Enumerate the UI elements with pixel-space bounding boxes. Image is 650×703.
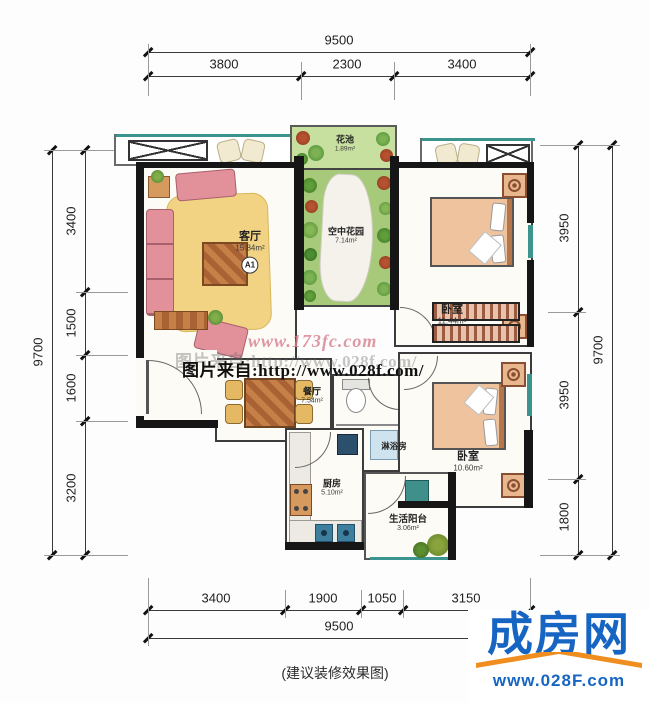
bedside-unit: [502, 173, 527, 198]
plant-icon: [376, 132, 390, 146]
window-sill: [422, 138, 535, 141]
dim-label: 1900: [307, 591, 340, 606]
room-name: 卧室: [438, 304, 467, 317]
plant-icon: [302, 222, 318, 238]
dim-label: 9500: [323, 619, 356, 634]
door-swing: [368, 476, 406, 514]
wall: [527, 260, 534, 347]
extension-line: [403, 590, 404, 618]
room-area: 1.89m²: [335, 146, 355, 154]
plant-icon: [304, 290, 316, 302]
dimension-line: [148, 76, 530, 77]
room-name: 厨房: [321, 478, 343, 489]
toilet-bowl: [346, 388, 366, 413]
pillow: [483, 418, 499, 446]
room-label-kitchen: 厨房 5.10m²: [321, 478, 343, 497]
wardrobe: [432, 324, 520, 343]
room-name: 花池: [335, 135, 355, 146]
wall: [448, 472, 456, 560]
dim-label: 1600: [64, 374, 79, 403]
wall: [136, 162, 297, 168]
window-sill: [370, 557, 450, 560]
closet-icon: [128, 140, 208, 161]
extension-line: [548, 312, 586, 313]
dim-label: 1050: [366, 591, 399, 606]
room-name: 客厅: [235, 231, 264, 244]
bedside-unit: [501, 473, 526, 498]
dim-label: 3150: [450, 591, 483, 606]
extension-line: [285, 590, 286, 618]
plant-icon: [427, 534, 449, 556]
wall: [285, 542, 364, 550]
burner-icon: [294, 506, 299, 511]
logo-url: www.028F.com: [468, 671, 650, 691]
extension-line: [540, 145, 620, 146]
plant-icon: [305, 200, 318, 213]
watermark-site: www.173fc.com: [248, 331, 377, 352]
sink: [315, 524, 333, 542]
room-name: 卧室: [453, 451, 482, 464]
door-opening: [136, 358, 144, 416]
room-name: 淋浴房: [381, 441, 407, 451]
wall: [294, 156, 304, 310]
dim-label: 3200: [64, 474, 79, 503]
wall: [390, 156, 399, 310]
chair: [225, 404, 243, 424]
cushion-icon: [240, 138, 266, 164]
door-swing: [400, 307, 436, 343]
room-label-living: 客厅 15.84m² A1: [235, 231, 264, 274]
room-label-flower-bed: 花池 1.89m²: [335, 135, 355, 154]
room-label-shower: 淋浴房: [381, 441, 407, 451]
extension-line: [148, 578, 149, 646]
wall: [394, 162, 534, 168]
bed: [432, 382, 506, 450]
tv-cabinet: [154, 311, 208, 330]
dim-label: 3800: [208, 57, 241, 72]
plant-icon: [308, 145, 324, 161]
chair: [225, 380, 243, 400]
chair: [295, 404, 313, 424]
dim-label: 1800: [557, 503, 572, 532]
dim-label: 3400: [446, 57, 479, 72]
dimension-line: [578, 145, 579, 555]
bedside-unit: [501, 362, 526, 387]
room-area: 15.84m²: [235, 244, 264, 254]
site-logo: 成房网 www.028F.com: [468, 610, 650, 702]
extension-line: [301, 62, 302, 100]
room-label-bedroom-bottom: 卧室 10.60m²: [453, 451, 482, 474]
extension-line: [148, 44, 149, 96]
kitchen-appliance: [337, 434, 358, 455]
dim-label: 3400: [200, 591, 233, 606]
room-area: 5.10m²: [321, 489, 343, 497]
plant-icon: [151, 170, 164, 183]
wall: [524, 430, 533, 508]
plant-icon: [377, 176, 391, 190]
dim-label: 3400: [64, 207, 79, 236]
dim-label: 9500: [323, 33, 356, 48]
plant-icon: [413, 542, 429, 558]
dim-label: 1500: [64, 309, 79, 338]
plant-icon: [208, 310, 223, 325]
bed: [430, 197, 514, 267]
pillow: [490, 202, 507, 231]
dim-label: 3950: [557, 214, 572, 243]
extension-line: [548, 479, 586, 480]
unit-badge: A1: [241, 256, 258, 273]
dimension-line: [612, 145, 613, 555]
caption: (建议装修效果图): [281, 663, 388, 683]
plant-icon: [302, 270, 317, 285]
room-label-dining: 餐厅 7.54m²: [301, 386, 323, 405]
sofa: [146, 209, 174, 316]
room-name: 生活阳台: [389, 514, 427, 525]
room-label-bedroom-top: 卧室 11.44m²: [438, 304, 467, 327]
extension-line: [361, 590, 362, 618]
wall: [527, 165, 534, 223]
burner-icon: [303, 506, 308, 511]
wall: [398, 501, 456, 508]
room-name: 餐厅: [301, 386, 323, 397]
dimension-line: [148, 52, 530, 53]
room-label-sky-garden: 空中花园 7.14m²: [328, 226, 364, 245]
dim-label: 3950: [557, 381, 572, 410]
door-swing: [368, 378, 400, 410]
extension-line: [394, 62, 395, 100]
room-area: 3.06m²: [389, 526, 427, 534]
dining-table: [244, 378, 296, 428]
dim-label: 9700: [31, 338, 46, 367]
extension-line: [540, 555, 620, 556]
room-area: 10.60m²: [453, 464, 482, 474]
extension-line: [530, 44, 531, 96]
burner-icon: [294, 489, 299, 494]
sofa: [175, 168, 237, 201]
watermark-source: 图片来自:http://www.028f.com/: [182, 356, 424, 381]
entry-door-leaf: [146, 360, 149, 414]
room-label-balcony: 生活阳台 3.06m²: [389, 514, 427, 534]
burner-icon: [303, 489, 308, 494]
headboard: [507, 199, 512, 265]
room-area: 11.44m²: [438, 317, 467, 327]
door-swing: [295, 432, 331, 468]
window-sill: [116, 134, 294, 137]
plant-icon: [296, 131, 310, 145]
stove: [290, 484, 312, 516]
plant-icon: [377, 282, 391, 296]
window: [527, 374, 532, 416]
logo-text: 成房网: [468, 610, 650, 658]
wall: [136, 162, 144, 362]
sink: [337, 524, 355, 542]
cushion-icon: [216, 138, 243, 165]
dim-label: 9700: [591, 336, 606, 365]
window: [528, 225, 533, 258]
closet-icon: [486, 144, 530, 164]
dim-label: 2300: [331, 57, 364, 72]
plant-icon: [302, 178, 317, 193]
dimension-line: [52, 150, 53, 555]
room-area: 7.54m²: [301, 397, 323, 405]
floorplan-image: 9500 3800 2300 3400 9700 3400 1500 1600 …: [0, 0, 650, 703]
headboard: [499, 384, 504, 448]
room-name: 空中花园: [328, 226, 364, 237]
room-area: 7.14m²: [328, 237, 364, 245]
plant-icon: [304, 248, 317, 261]
wall: [140, 420, 218, 428]
